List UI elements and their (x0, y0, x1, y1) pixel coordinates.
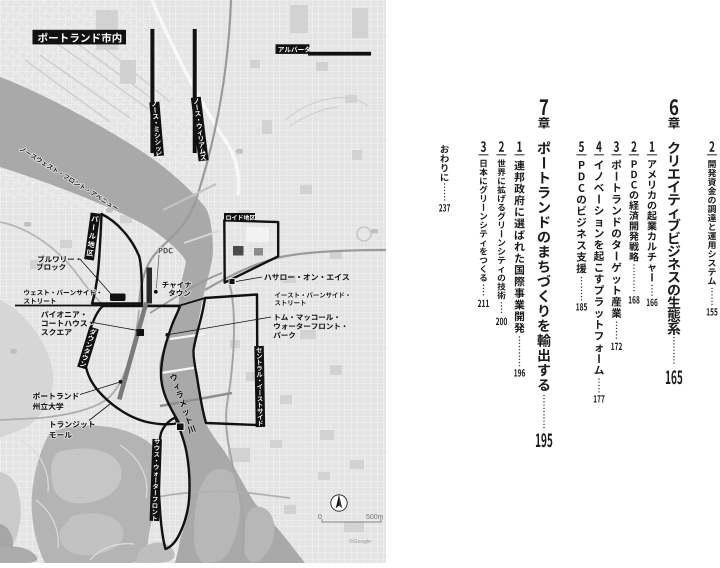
svg-text:500m: 500m (366, 514, 384, 521)
svg-text:0: 0 (318, 514, 322, 521)
svg-text:©Google: ©Google (349, 538, 371, 545)
